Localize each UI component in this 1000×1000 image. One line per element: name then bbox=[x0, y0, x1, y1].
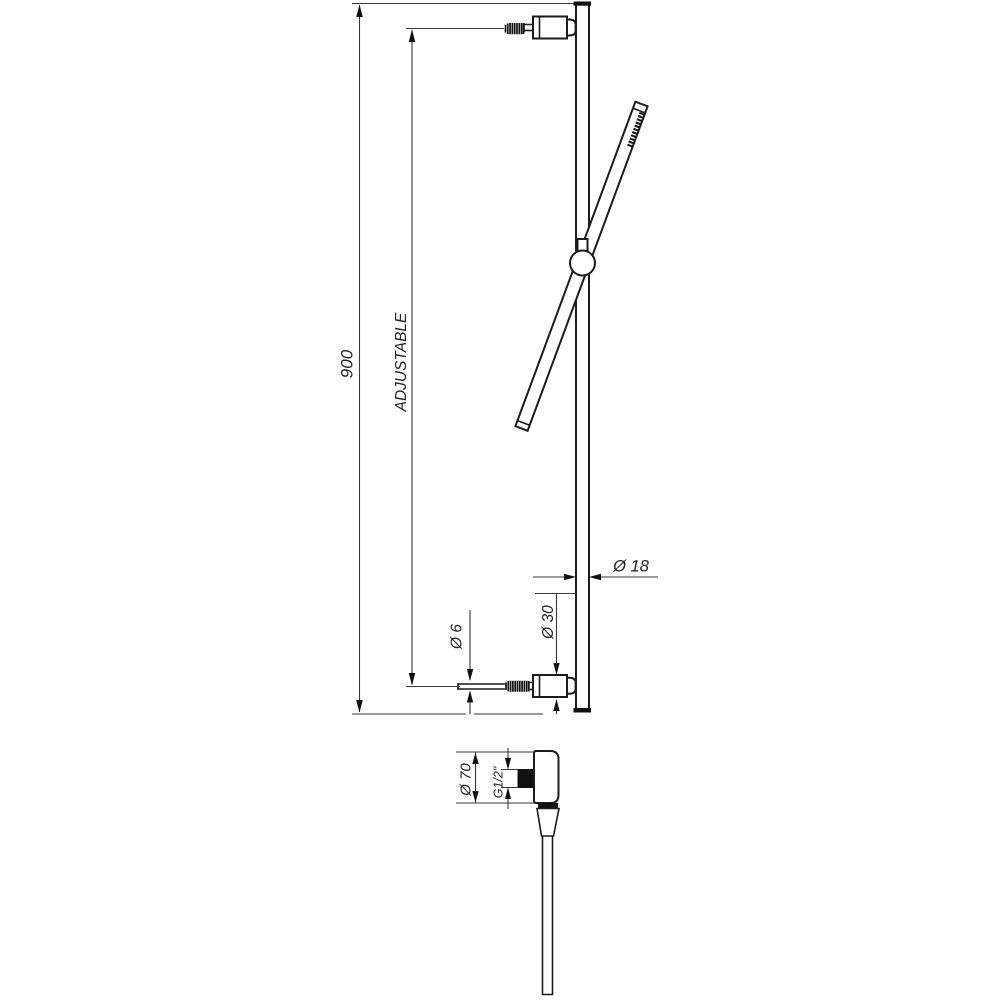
shower-rail-drawing: 900 ADJUSTABLE Ø 18 Ø 6 Ø 30 bbox=[0, 0, 1000, 1000]
hose-outline bbox=[543, 836, 553, 995]
arrowhead-g12-bottom bbox=[505, 788, 511, 800]
outlet-thread-nipple bbox=[518, 770, 534, 788]
arrowhead-6-top bbox=[467, 669, 473, 681]
outlet-flange bbox=[534, 751, 559, 803]
arrowhead-adjustable-bottom bbox=[409, 673, 416, 686]
label-thread-size: G1/2" bbox=[492, 766, 506, 798]
bottom-wall-bracket bbox=[406, 675, 576, 697]
wall-outlet-elbow bbox=[518, 751, 559, 836]
dimension-screw-diameter: Ø 6 bbox=[449, 610, 474, 714]
bottom-bracket-neck bbox=[567, 678, 576, 694]
label-overall-height: 900 bbox=[338, 349, 357, 378]
arrowhead-g12-top bbox=[505, 758, 511, 770]
label-bracket-diameter: Ø 30 bbox=[540, 605, 557, 640]
arrowhead-70-top bbox=[472, 753, 478, 765]
hose-cone-connector bbox=[537, 809, 559, 837]
dimension-900: 900 bbox=[338, 4, 575, 715]
top-wall-bracket bbox=[506, 17, 576, 39]
label-flange-diameter: Ø 70 bbox=[458, 763, 475, 797]
arrowhead-18-right bbox=[589, 574, 601, 581]
arrowhead-30-top bbox=[553, 663, 559, 675]
technical-drawing-canvas: 900 ADJUSTABLE Ø 18 Ø 6 Ø 30 bbox=[0, 0, 1000, 1000]
arrowhead-900-top bbox=[356, 5, 363, 18]
top-screw-threads bbox=[506, 23, 524, 34]
top-bracket-neck bbox=[567, 20, 576, 36]
dimension-rail-diameter: Ø 18 bbox=[533, 558, 658, 581]
slide-rail bbox=[574, 2, 591, 712]
arrowhead-900-bottom bbox=[356, 700, 363, 713]
label-rail-diameter: Ø 18 bbox=[612, 558, 650, 576]
arrowhead-adjustable-top bbox=[409, 30, 416, 43]
slider-knob bbox=[570, 251, 595, 276]
arrowhead-30-bottom bbox=[553, 699, 559, 711]
hand-shower-assembly bbox=[515, 102, 647, 431]
rail-bottom-cap bbox=[574, 709, 591, 713]
rail-top-cap bbox=[574, 2, 591, 5]
bottom-screw-threads bbox=[506, 681, 529, 692]
arrowhead-6-bottom bbox=[467, 691, 473, 703]
dimension-adjustable: ADJUSTABLE bbox=[393, 29, 504, 686]
label-screw-diameter: Ø 6 bbox=[449, 624, 466, 650]
shower-hose bbox=[543, 836, 553, 995]
top-bracket-body bbox=[533, 17, 567, 39]
bottom-bracket-body bbox=[533, 675, 567, 697]
arrowhead-18-left bbox=[564, 574, 576, 581]
dimension-thread-size: G1/2" bbox=[492, 748, 519, 809]
label-adjustable: ADJUSTABLE bbox=[393, 312, 410, 412]
